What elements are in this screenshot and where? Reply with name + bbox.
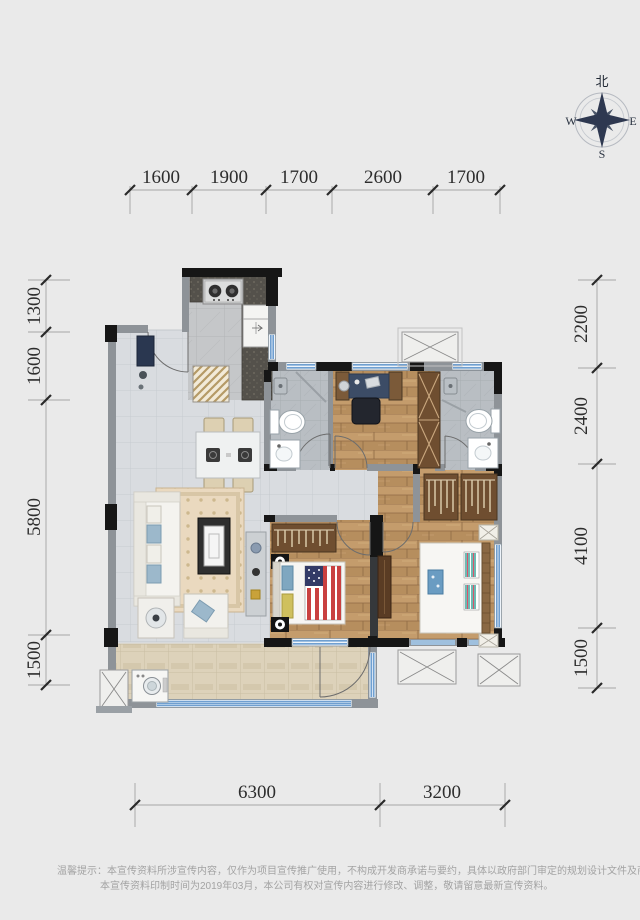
foyer-fixture [139, 371, 147, 379]
compass-west-label: W [565, 114, 577, 128]
balcony-furniture [132, 670, 168, 702]
floor-plan-page: 北 W E S 1600 1900 1700 2600 1700 1300 16… [0, 0, 640, 920]
dim-top-2: 1900 [210, 167, 248, 188]
dim-right-2: 2400 [571, 397, 592, 435]
console-item [251, 590, 260, 599]
bed-pillow [282, 594, 293, 618]
bedroom2-side-window [495, 544, 502, 628]
sofa-pillow [147, 565, 161, 583]
compass-south-label: S [599, 147, 606, 161]
compass-north-label: 北 [595, 74, 608, 89]
dim-right-1: 2200 [571, 305, 592, 343]
desk-cabinet [389, 372, 402, 400]
bed-pillow-striped [464, 584, 479, 610]
dim-right-4: 1500 [571, 639, 592, 677]
dim-left-2: 1600 [24, 347, 45, 385]
bedroom1-window [292, 639, 348, 647]
kitchen-window [269, 334, 276, 360]
dim-bottom-1: 6300 [238, 782, 276, 803]
ac-platform-left [96, 670, 132, 713]
study-wardrobe [418, 372, 440, 468]
dim-left-3: 5800 [24, 498, 45, 536]
dim-right-3: 4100 [571, 527, 592, 565]
floor-plan-canvas: 北 W E S 1600 1900 1700 2600 1700 1300 16… [0, 0, 640, 920]
sofa-pillow [147, 525, 161, 543]
kitchen-cabinet [193, 366, 229, 402]
dim-bottom-2: 3200 [423, 782, 461, 803]
toilet-tank [270, 410, 279, 434]
disclaimer-line1: 温馨提示：本宣传资料所涉宣传内容，仅作为项目宣传推广使用，不构成开发商承诺与要约… [57, 864, 640, 877]
dim-top-3: 1700 [280, 167, 318, 188]
shoe-cabinet [137, 336, 154, 366]
bedroom1-furniture [271, 524, 345, 632]
dim-top-4: 2600 [364, 167, 402, 188]
balcony-side-window [369, 652, 376, 698]
bed-pillow-striped [464, 552, 479, 578]
disclaimer-line2: 本宣传资料印制时间为2019年03月，本公司有权对宣传内容进行修改、调整，敬请留… [100, 879, 553, 892]
dining-chair [204, 418, 224, 433]
bed-pillow [282, 566, 293, 590]
dim-left-1: 1300 [24, 287, 45, 325]
compass-east-label: E [629, 114, 636, 128]
dim-top-1: 1600 [142, 167, 180, 188]
dim-top-5: 1700 [447, 167, 485, 188]
dining-chair [233, 418, 253, 433]
flag-blanket [305, 566, 341, 620]
balcony-window [156, 700, 352, 708]
desk-chair [352, 398, 380, 424]
ac-platform-top [398, 328, 462, 366]
bathroom1-window [286, 363, 316, 371]
bed-runner [428, 570, 443, 594]
ac-platform-bottom-mid [398, 650, 456, 684]
ac-platform-bottom-right [478, 654, 520, 686]
bedroom2-window-strip1 [411, 640, 455, 645]
dim-left-4: 1500 [24, 641, 45, 679]
desk-globe [339, 381, 349, 391]
